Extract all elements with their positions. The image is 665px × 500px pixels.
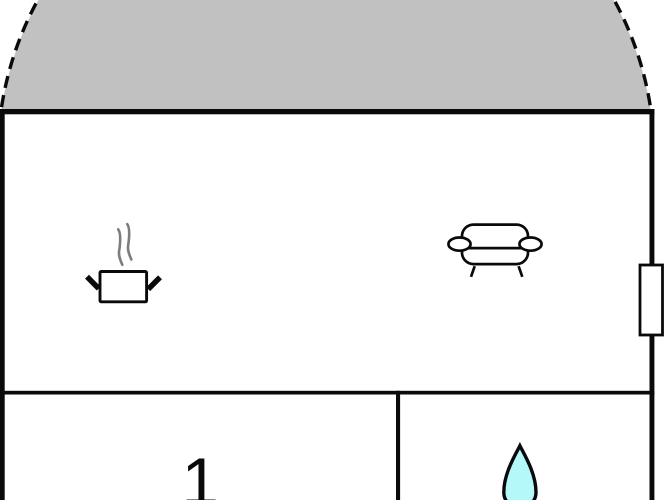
svg-text:1: 1 — [182, 445, 219, 500]
